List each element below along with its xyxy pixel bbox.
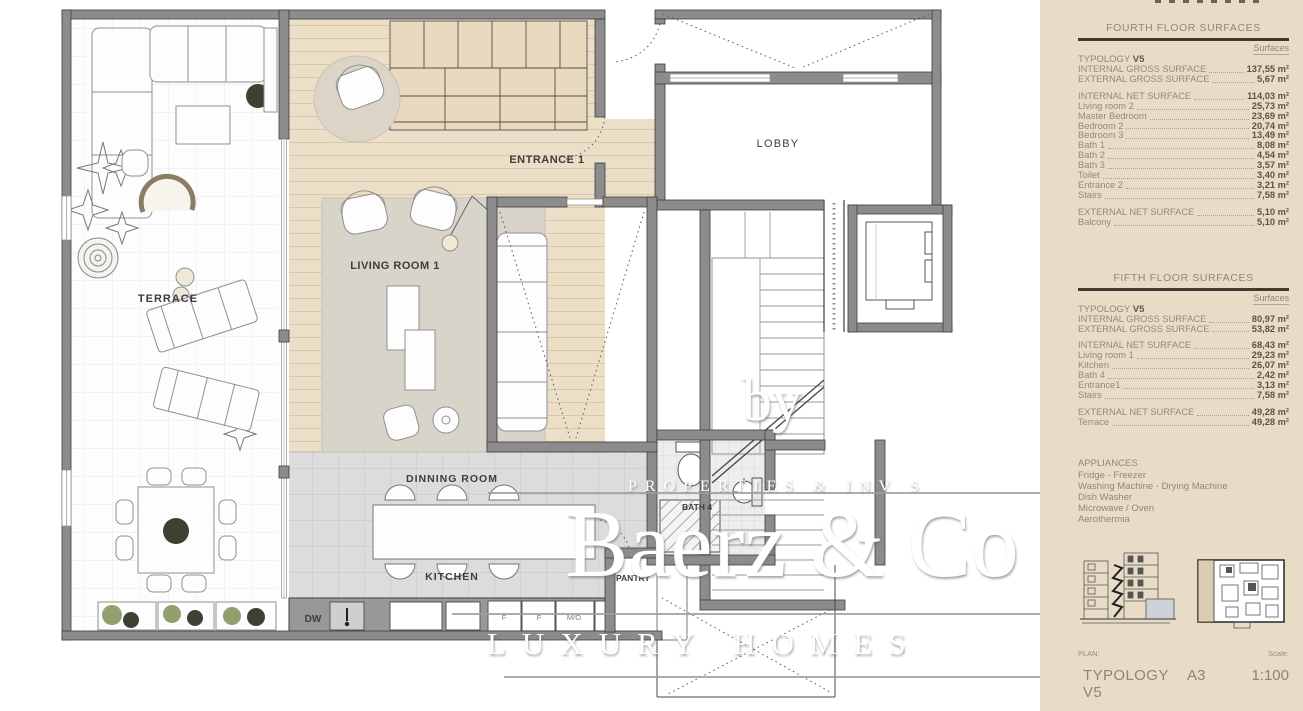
freezer-label: F: [537, 613, 542, 622]
reference-thumbnails: [1080, 547, 1289, 631]
surface-row: Terrace 49,28 m²: [1078, 418, 1289, 428]
elevator: [866, 222, 932, 309]
thumb-core: [1248, 583, 1256, 591]
surface-row: INTERNAL GROSS SURFACE 80,97 m²: [1078, 315, 1289, 325]
appliance-item: Microwave / Oven: [1078, 503, 1289, 514]
entrance-wardrobe: [390, 21, 587, 130]
appliances-title: APPLIANCES: [1078, 458, 1289, 469]
dotted-leader: [1114, 225, 1254, 226]
pantry-label: PANTRY: [616, 573, 650, 583]
surface-row: Stairs 7,58 m²: [1078, 391, 1289, 401]
dining-room-label: DINNING ROOM: [406, 473, 498, 485]
dotted-leader: [1126, 128, 1248, 129]
surface-row: Stairs 7,58 m²: [1078, 191, 1289, 201]
terrace-label: TERRACE: [138, 293, 198, 305]
dishwasher-label: DW: [305, 614, 322, 625]
dotted-leader: [1112, 425, 1249, 426]
dotted-leader: [1126, 188, 1254, 189]
surface-row: Balcony 5,10 m²: [1078, 218, 1289, 228]
appliance-item: Aerothermia: [1078, 514, 1289, 525]
dotted-leader: [1137, 358, 1249, 359]
dotted-leader: [1209, 322, 1248, 323]
appliance-item: Fridge - Freezer: [1078, 470, 1289, 481]
dotted-leader: [1108, 168, 1254, 169]
thumb-core: [1226, 567, 1232, 573]
lobby-label: LOBBY: [757, 138, 800, 150]
dotted-leader: [1212, 82, 1254, 83]
floor-plan-sheet: TERRACE ENTRANCE 1 LIVING ROOM 1 LOBBY D…: [0, 0, 1303, 711]
surface-row: EXTERNAL GROSS SURFACE 5,67 m²: [1078, 75, 1289, 85]
scale-label: Scale:: [1268, 649, 1289, 658]
dotted-leader: [1194, 348, 1249, 349]
surfaces-sidebar: FOURTH FLOOR SURFACES Surfaces TYPOLOGY …: [1040, 0, 1303, 711]
section-rule: [1078, 288, 1289, 291]
dotted-leader: [1112, 368, 1249, 369]
dotted-leader: [1123, 388, 1254, 389]
typology-line: TYPOLOGY V5: [1078, 304, 1289, 315]
living-room-label: LIVING ROOM 1: [350, 260, 440, 272]
dotted-leader: [1212, 331, 1248, 332]
fifth-floor-surfaces-section: FIFTH FLOOR SURFACES Surfaces TYPOLOGY V…: [1078, 272, 1289, 428]
kitchen-label: KITCHEN: [425, 571, 479, 583]
dotted-leader: [1137, 109, 1249, 110]
surface-row: EXTERNAL GROSS SURFACE 53,82 m²: [1078, 325, 1289, 335]
dotted-leader: [1126, 138, 1248, 139]
fridge-label: F: [502, 613, 507, 622]
appliances-list: APPLIANCES Fridge - Freezer Washing Mach…: [1078, 458, 1289, 525]
dotted-leader: [1150, 119, 1249, 120]
dotted-leader: [1105, 198, 1254, 199]
dotted-leader: [1194, 99, 1244, 100]
plan-label: PLAN:: [1078, 649, 1100, 658]
dotted-leader: [1108, 148, 1254, 149]
dotted-leader: [1108, 158, 1254, 159]
dotted-leader: [1209, 72, 1243, 73]
fourth-floor-surfaces-section: FOURTH FLOOR SURFACES Surfaces TYPOLOGY …: [1078, 22, 1289, 228]
dotted-leader: [1108, 378, 1254, 379]
surfaces-column-header: Surfaces: [1078, 293, 1289, 303]
section-rule: [1078, 38, 1289, 41]
dotted-leader: [1197, 215, 1254, 216]
floorplan-thumbnail: [1196, 557, 1288, 631]
fifth-floor-title: FIFTH FLOOR SURFACES: [1078, 272, 1289, 284]
plan-title-block: PLAN: Scale: TYPOLOGY V5 A3 1:100 FIFTH …: [1078, 649, 1289, 711]
dotted-leader: [1103, 178, 1254, 179]
dotted-leader: [1197, 415, 1249, 416]
fourth-floor-title: FOURTH FLOOR SURFACES: [1078, 22, 1289, 34]
appliance-item: Dish Washer: [1078, 492, 1289, 503]
fifth-floor-table: INTERNAL GROSS SURFACE 80,97 m² EXTERNAL…: [1078, 315, 1289, 428]
cropped-header-text: [1155, 0, 1260, 3]
microwave-oven-label: M/O: [567, 613, 581, 622]
bath4-label: BATH 4: [682, 502, 712, 512]
fourth-floor-table: INTERNAL GROSS SURFACE 137,55 m² EXTERNA…: [1078, 65, 1289, 228]
elevation-thumbnail: [1080, 547, 1176, 631]
entrance-label: ENTRANCE 1: [509, 154, 584, 166]
floor-plan-drawing: TERRACE ENTRANCE 1 LIVING ROOM 1 LOBBY D…: [0, 0, 1040, 711]
floor-plan-area: TERRACE ENTRANCE 1 LIVING ROOM 1 LOBBY D…: [0, 0, 1040, 711]
dotted-leader: [1105, 398, 1254, 399]
stair-zigzag: [1113, 565, 1122, 617]
surfaces-column-header: Surfaces: [1078, 43, 1289, 53]
appliance-item: Washing Machine - Drying Machine: [1078, 481, 1289, 492]
plan-block-row: TYPOLOGY V5 A3 1:100: [1078, 667, 1289, 701]
